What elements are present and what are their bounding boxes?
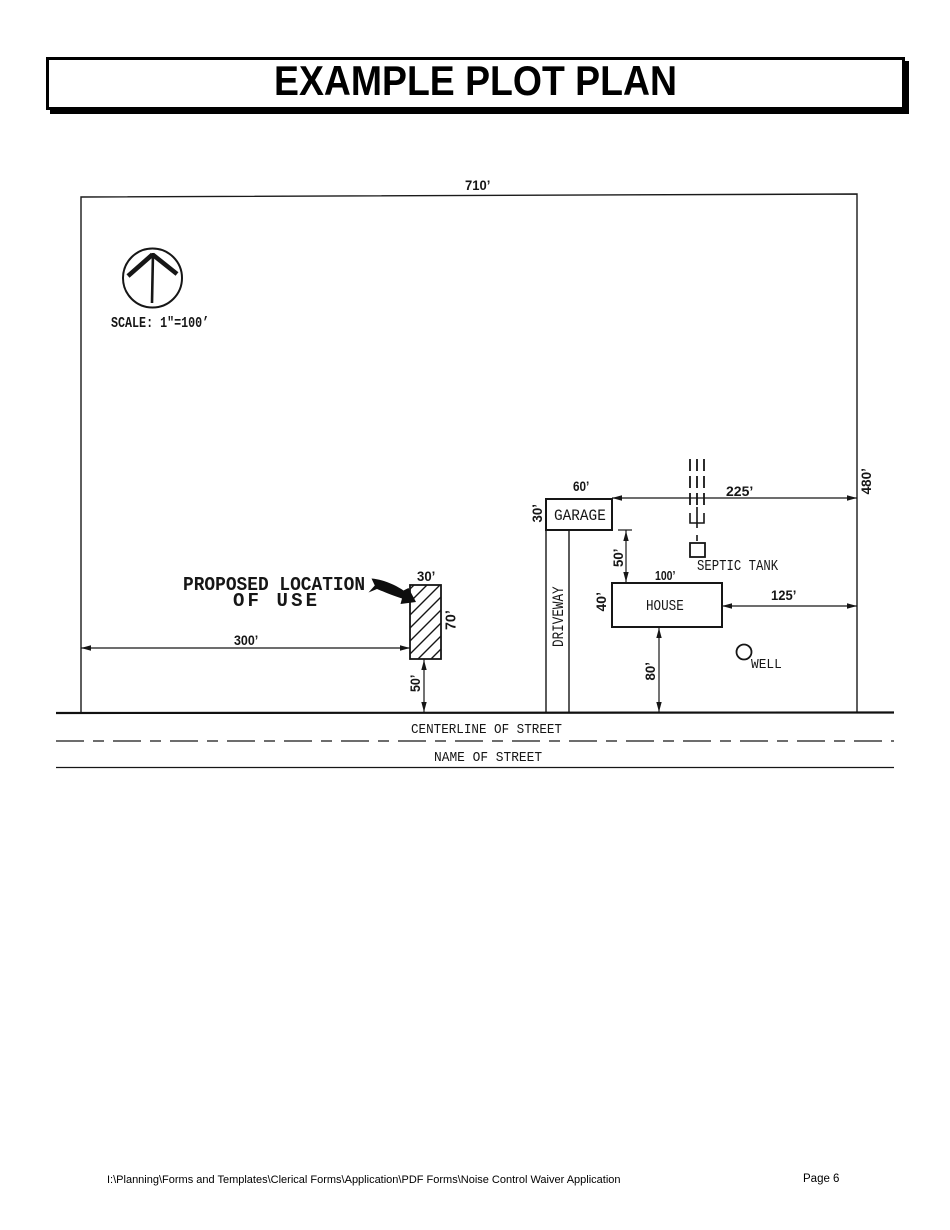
svg-text:CENTERLINE OF STREET: CENTERLINE OF STREET xyxy=(411,721,562,737)
svg-text:300’: 300’ xyxy=(234,632,258,648)
svg-text:225’: 225’ xyxy=(726,483,753,499)
svg-text:SEPTIC TANK: SEPTIC TANK xyxy=(697,559,779,575)
svg-text:100’: 100’ xyxy=(655,570,675,583)
svg-text:30’: 30’ xyxy=(530,504,545,522)
svg-text:710’: 710’ xyxy=(465,178,490,194)
svg-text:30’: 30’ xyxy=(417,569,435,584)
svg-text:HOUSE: HOUSE xyxy=(646,598,684,615)
svg-text:50’: 50’ xyxy=(611,549,626,567)
svg-text:60’: 60’ xyxy=(573,478,589,494)
svg-text:SCALE: 1″=100’: SCALE: 1″=100’ xyxy=(111,316,209,333)
svg-text:DRIVEWAY: DRIVEWAY xyxy=(551,586,569,647)
svg-text:480’: 480’ xyxy=(859,468,874,494)
svg-text:70’: 70’ xyxy=(443,610,459,630)
svg-text:NAME OF STREET: NAME OF STREET xyxy=(434,751,542,767)
svg-text:50’: 50’ xyxy=(407,675,423,692)
svg-text:40’: 40’ xyxy=(593,592,609,611)
svg-text:PROPOSED LOCATION: PROPOSED LOCATION xyxy=(183,575,365,597)
svg-text:WELL: WELL xyxy=(751,657,782,672)
svg-text:125’: 125’ xyxy=(771,588,796,604)
svg-text:GARAGE: GARAGE xyxy=(554,506,606,525)
svg-text:80’: 80’ xyxy=(643,662,658,680)
